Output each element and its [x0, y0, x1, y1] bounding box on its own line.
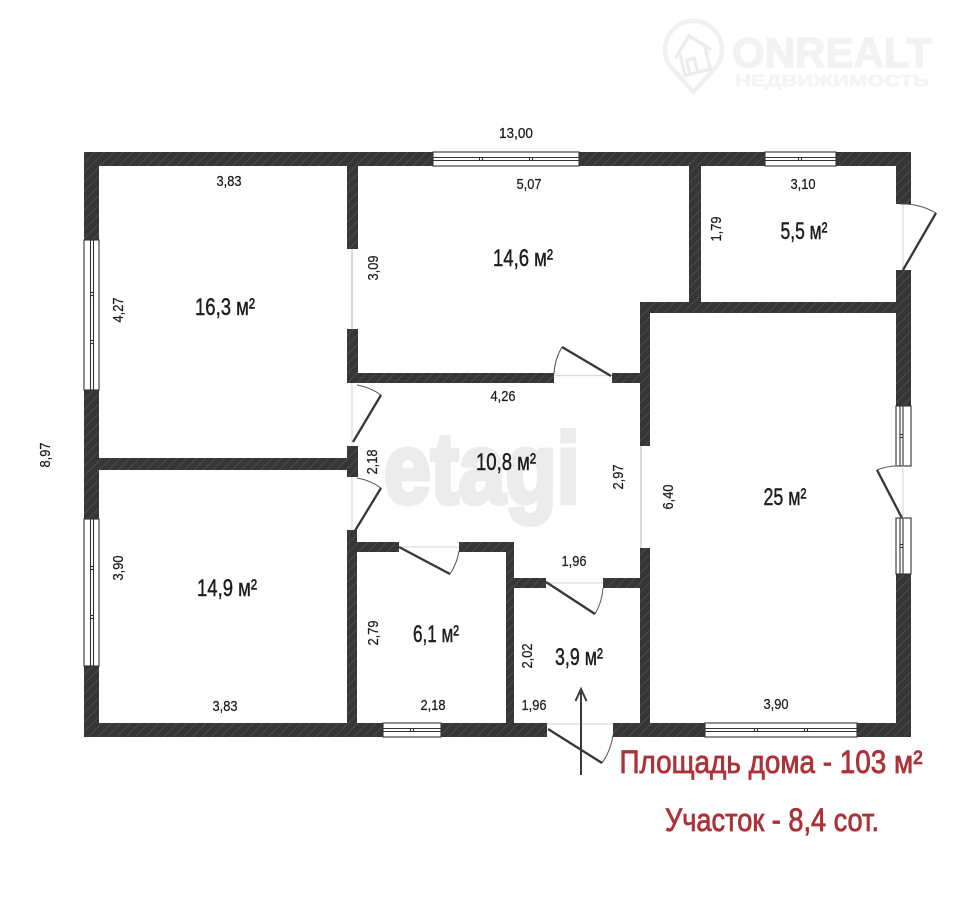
svg-text:8,97: 8,97	[37, 443, 54, 468]
svg-text:ONREALT: ONREALT	[732, 29, 932, 76]
svg-text:5,07: 5,07	[517, 176, 542, 193]
svg-text:14,6 м²: 14,6 м²	[493, 245, 553, 272]
svg-text:Участок - 8,4 сот.: Участок - 8,4 сот.	[665, 802, 879, 838]
svg-text:3,90: 3,90	[110, 556, 127, 581]
svg-text:1,96: 1,96	[522, 697, 547, 714]
svg-text:НЕДВИЖИМОСТЬ: НЕДВИЖИМОСТЬ	[735, 73, 929, 90]
svg-text:6,40: 6,40	[660, 485, 677, 510]
svg-text:3,90: 3,90	[764, 696, 789, 713]
svg-text:6,1 м²: 6,1 м²	[413, 621, 459, 648]
svg-text:3,9 м²: 3,9 м²	[555, 644, 603, 671]
svg-text:1,79: 1,79	[708, 217, 725, 242]
svg-text:3,09: 3,09	[365, 256, 382, 281]
svg-text:4,26: 4,26	[491, 388, 516, 405]
svg-text:3,83: 3,83	[217, 173, 242, 190]
svg-text:1,96: 1,96	[562, 553, 587, 570]
svg-text:25 м²: 25 м²	[764, 484, 807, 511]
svg-text:16,3 м²: 16,3 м²	[195, 294, 255, 321]
svg-text:Площадь дома - 103 м²: Площадь дома - 103 м²	[620, 744, 923, 780]
svg-text:3,83: 3,83	[213, 698, 238, 715]
svg-text:2,97: 2,97	[610, 465, 627, 490]
svg-text:2,18: 2,18	[421, 697, 446, 714]
svg-text:2,79: 2,79	[365, 621, 382, 646]
svg-text:2,18: 2,18	[364, 450, 381, 475]
svg-text:3,10: 3,10	[791, 176, 816, 193]
svg-text:5,5 м²: 5,5 м²	[781, 218, 828, 245]
svg-text:2,02: 2,02	[519, 644, 536, 669]
svg-text:4,27: 4,27	[110, 298, 127, 323]
svg-text:13,00: 13,00	[499, 125, 533, 142]
svg-text:14,9 м²: 14,9 м²	[197, 575, 257, 602]
svg-text:10,8 м²: 10,8 м²	[476, 449, 536, 476]
